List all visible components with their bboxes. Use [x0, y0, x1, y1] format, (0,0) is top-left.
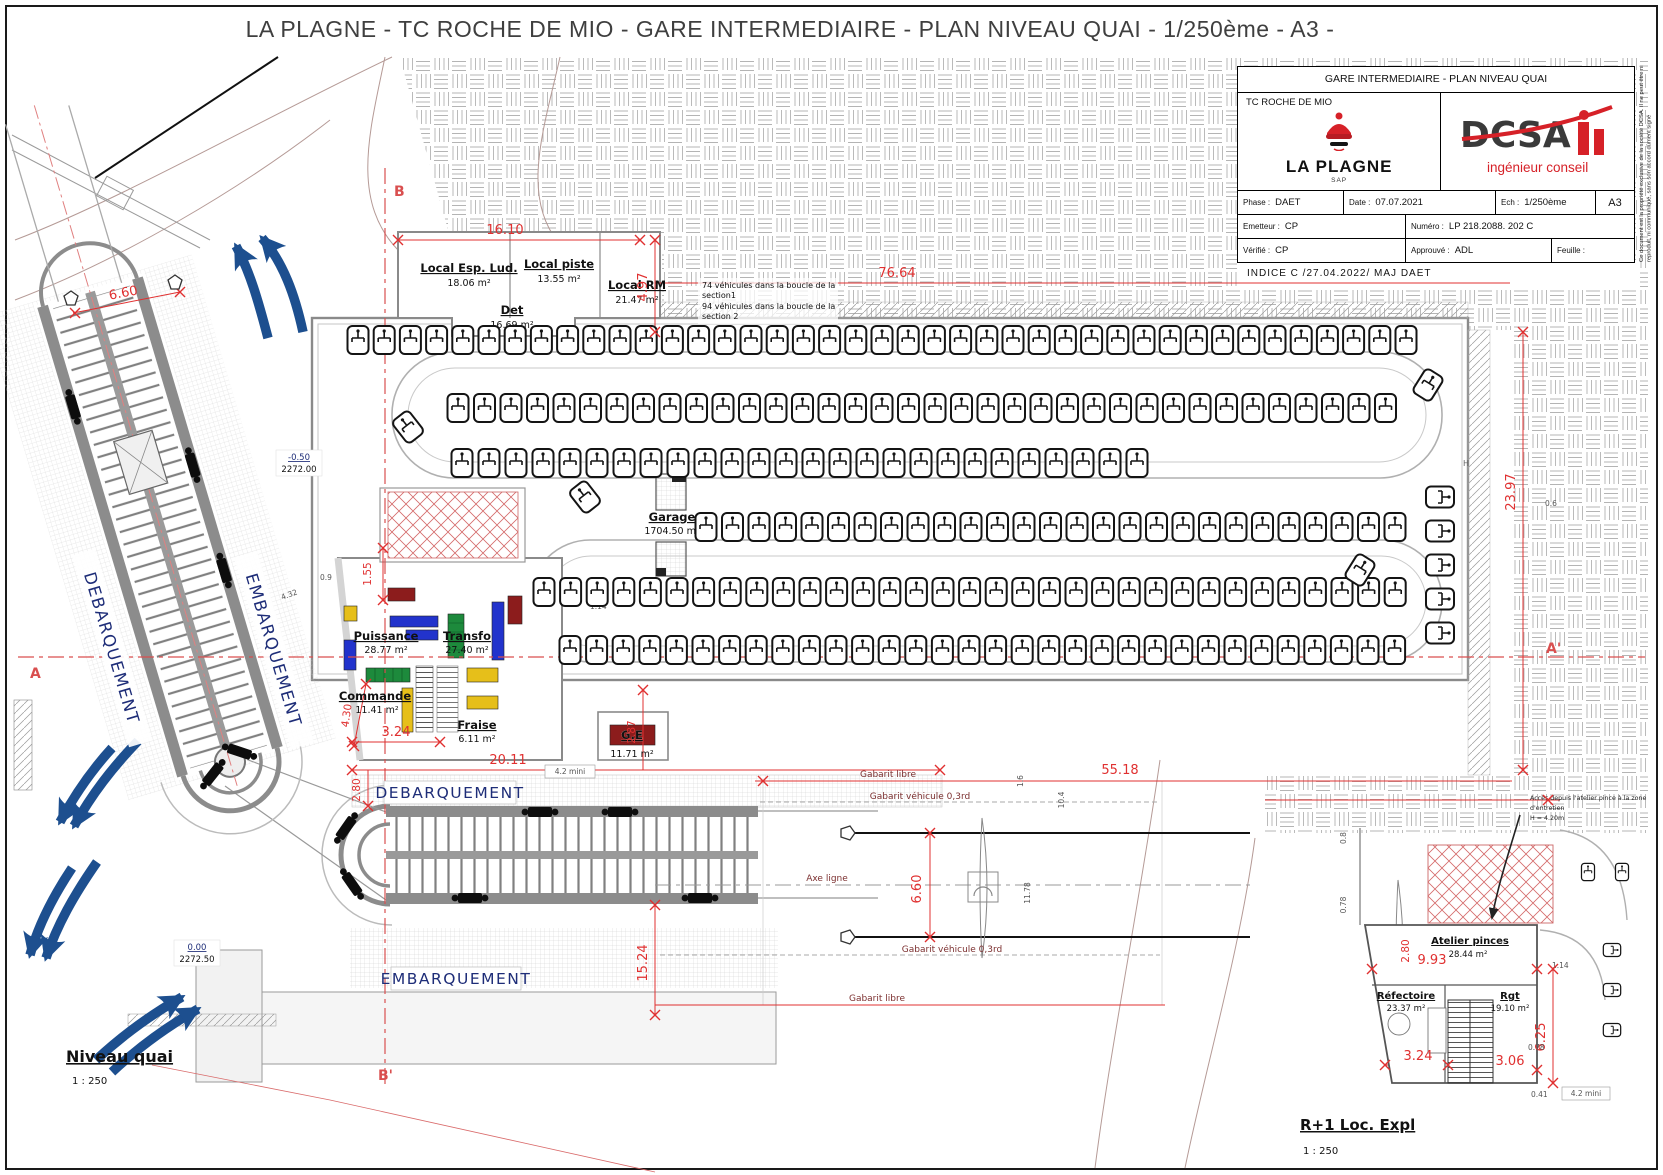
- gabarit-libre-bottom: Gabarit libre: [849, 994, 906, 1004]
- dim-2-87: 2.87: [626, 720, 638, 743]
- inset-dim-0-78b: 0.78: [1339, 896, 1348, 913]
- room-commande-name: Commande: [339, 689, 411, 703]
- dim-1-55: 1.55: [362, 562, 374, 585]
- date-label: Date :: [1349, 198, 1370, 207]
- scale-value: 1/250ème: [1524, 197, 1566, 208]
- dim-2-80: 2.80: [351, 778, 363, 801]
- niveau-quai-scale: 1 : 250: [72, 1076, 107, 1087]
- sheet-label: Feuille :: [1557, 246, 1585, 255]
- inset-atelier-area: 28.44 m²: [1449, 950, 1488, 960]
- dim-1-6: 1.6: [1016, 775, 1025, 787]
- dim-4-2-mini: 4.2 mini: [555, 767, 586, 776]
- dim-0-6: 0.6: [1545, 499, 1557, 508]
- scale-label: Ech :: [1501, 198, 1519, 207]
- room-commande-area: 11.41 m²: [355, 705, 398, 716]
- inset-scale: 1 : 250: [1303, 1146, 1338, 1157]
- phase-value: DAET: [1275, 197, 1300, 208]
- firm-tagline: ingénieur conseil: [1441, 160, 1634, 175]
- emitter-label: Emetteur :: [1243, 222, 1280, 231]
- inset-refectoire-area: 23.37 m²: [1387, 1004, 1426, 1014]
- svg-text:0.00: 0.00: [188, 943, 207, 953]
- room-ge-area: 11.71 m²: [610, 749, 653, 760]
- debarquement-bottom-label: DEBARQUEMENT: [375, 781, 524, 804]
- inset-rgt-area: 19.10 m²: [1491, 1004, 1530, 1014]
- grid-mark-h: H: [1463, 459, 1469, 468]
- inset-dim-3-24: 3.24: [1404, 1049, 1433, 1064]
- room-transfo-name: Transfo: [443, 629, 491, 643]
- room-piste-area: 13.55 m²: [537, 274, 580, 285]
- la-plagne-logo-icon: [1317, 111, 1361, 151]
- number-label: Numéro :: [1411, 222, 1444, 231]
- room-fraise-name: Fraise: [457, 718, 496, 732]
- verified-value: CP: [1275, 245, 1288, 256]
- svg-text:2272.50: 2272.50: [179, 955, 214, 965]
- embarquement-bottom-label: EMBARQUEMENT: [381, 967, 532, 990]
- emitter-value: CP: [1285, 221, 1298, 232]
- sheet-title: LA PLAGNE - TC ROCHE DE MIO - GARE INTER…: [240, 16, 1340, 43]
- title-block-doc-title: GARE INTERMEDIAIRE - PLAN NIVEAU QUAI: [1238, 67, 1634, 93]
- room-esp-lud-area: 18.06 m²: [447, 278, 490, 289]
- drawing-sheet: Local Esp. Lud. 18.06 m² Local piste 13.…: [0, 0, 1663, 1175]
- inset-dim-0-8: 0.8: [1339, 832, 1348, 844]
- number-value: LP 218.2088. 202 C: [1449, 221, 1533, 232]
- vehicles-note-l3: 94 véhicules dans la boucle de la: [702, 301, 835, 311]
- inset-atelier-name: Atelier pinces: [1431, 936, 1509, 947]
- inset-dim-3-06: 3.06: [1496, 1054, 1525, 1069]
- client-sub: SAP: [1238, 177, 1440, 184]
- dim-15-24: 15.24: [636, 944, 651, 981]
- dim-10-4: 10.4: [1057, 791, 1066, 808]
- dim-55-18: 55.18: [1101, 763, 1138, 778]
- inset-dim-1-14: 1.14: [1552, 961, 1569, 970]
- dim-23-97: 23.97: [1504, 473, 1519, 510]
- svg-text:2272.00: 2272.00: [281, 465, 316, 475]
- approved-value: ADL: [1455, 245, 1473, 256]
- dim-0-9: 0.9: [320, 573, 332, 582]
- inset-refectoire-name: Réfectoire: [1377, 990, 1436, 1002]
- format-value: A3: [1608, 197, 1621, 209]
- inset-dim-0-78: 0.78: [1528, 1043, 1545, 1052]
- room-piste-name: Local piste: [524, 257, 594, 271]
- elevation-lower: 0.00 2272.50: [174, 940, 220, 966]
- section-a-prime: A': [1546, 641, 1561, 657]
- title-block: GARE INTERMEDIAIRE - PLAN NIVEAU QUAI TC…: [1237, 66, 1635, 263]
- verified-label: Vérifié :: [1243, 246, 1270, 255]
- dim-4-30: 4.30: [339, 703, 354, 728]
- room-transfo-area: 27.40 m²: [445, 645, 488, 656]
- niveau-quai-title: Niveau quai: [66, 1047, 173, 1066]
- dim-6-60-line: 6.60: [910, 875, 925, 904]
- room-garage-name: Garage: [649, 510, 696, 524]
- indice-note: INDICE C /27.04.2022/ MAJ DAET: [1243, 268, 1436, 279]
- dim-76-64: 76.64: [878, 266, 915, 281]
- axe-ligne-label: Axe ligne: [806, 874, 848, 884]
- gabarit-libre-top: Gabarit libre: [860, 770, 917, 780]
- room-puissance-area: 28.77 m²: [364, 645, 407, 656]
- inset-dim-0-41: 0.41: [1531, 1090, 1548, 1099]
- phase-label: Phase :: [1243, 198, 1270, 207]
- vehicles-note-l1: 74 véhicules dans la boucle de la: [702, 280, 835, 290]
- section-a: A: [30, 666, 41, 682]
- section-b: B: [394, 184, 405, 200]
- room-puissance-name: Puissance: [354, 629, 419, 643]
- inset-dim-9-93: 9.93: [1418, 953, 1447, 968]
- elevation-upper: -0.50 2272.00: [276, 450, 322, 476]
- room-esp-lud-name: Local Esp. Lud.: [420, 261, 517, 275]
- room-garage-area: 1704.50 m²: [644, 526, 700, 537]
- existing-lift-sketch: [12, 57, 278, 248]
- svg-text:DCSA: DCSA: [1460, 115, 1571, 156]
- date-value: 07.07.2021: [1375, 197, 1423, 208]
- dim-3-24: 3.24: [382, 725, 411, 740]
- client-name: LA PLAGNE: [1238, 157, 1440, 177]
- dim-16-10: 16.10: [486, 223, 523, 238]
- room-det-name: Det: [501, 303, 524, 317]
- inset-title: R+1 Loc. Expl: [1300, 1116, 1415, 1134]
- vehicles-note-l4: section 2: [702, 312, 738, 321]
- svg-text:EMBARQUEMENT: EMBARQUEMENT: [381, 970, 532, 988]
- dim-20-11: 20.11: [489, 753, 526, 768]
- dim-4-97: 4.97: [636, 273, 651, 302]
- vehicles-note-l2: section1: [702, 291, 736, 300]
- inset-note-l3: H = 4.20m: [1530, 815, 1564, 822]
- project-name: TC ROCHE DE MIO: [1246, 97, 1332, 108]
- gabarit-vehicule-top: Gabarit véhicule 0,3rd: [870, 791, 971, 802]
- inset-note-l2: d'entretien: [1530, 805, 1564, 812]
- room-fraise-area: 6.11 m²: [458, 734, 495, 745]
- approved-label: Approuvé :: [1411, 246, 1450, 255]
- dcsa-logo-icon: DCSA: [1458, 105, 1618, 157]
- svg-text:-0.50: -0.50: [288, 453, 310, 463]
- svg-text:DEBARQUEMENT: DEBARQUEMENT: [375, 784, 524, 802]
- inset-dim-2-80: 2.80: [1400, 939, 1412, 962]
- inset-rgt-name: Rgt: [1500, 991, 1520, 1002]
- gabarit-vehicule-bottom: Gabarit véhicule 0,3rd: [902, 944, 1003, 955]
- section-b-prime: B': [378, 1068, 393, 1084]
- inset-dim-4-2-mini: 4.2 mini: [1571, 1089, 1602, 1098]
- dim-11-78: 11.78: [1023, 882, 1032, 904]
- copyright-side-note: Ce document est la propriété exclusive d…: [1639, 64, 1654, 262]
